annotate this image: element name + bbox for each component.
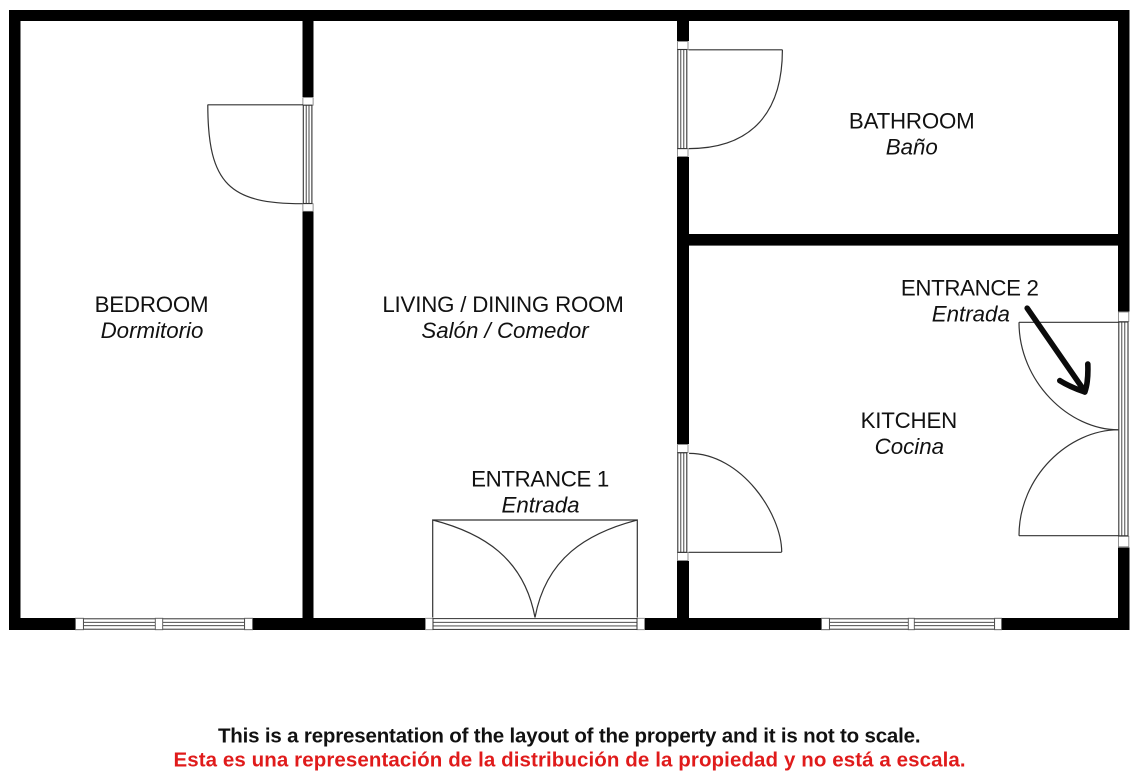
svg-text:BEDROOM: BEDROOM: [95, 292, 209, 317]
svg-text:Cocina: Cocina: [875, 434, 944, 459]
svg-text:Esta es una representación de: Esta es una representación de la distrib…: [173, 749, 965, 772]
svg-text:ENTRANCE 2: ENTRANCE 2: [901, 276, 1039, 301]
svg-text:Entrada: Entrada: [932, 302, 1010, 327]
svg-text:BATHROOM: BATHROOM: [849, 109, 975, 134]
svg-text:Entrada: Entrada: [501, 493, 579, 518]
svg-text:Dormitorio: Dormitorio: [101, 318, 204, 343]
svg-text:LIVING / DINING ROOM: LIVING / DINING ROOM: [382, 292, 623, 317]
svg-text:Salón / Comedor: Salón / Comedor: [421, 318, 590, 343]
svg-text:KITCHEN: KITCHEN: [861, 408, 957, 433]
svg-text:ENTRANCE 1: ENTRANCE 1: [471, 467, 609, 492]
svg-text:This is a representation of th: This is a representation of the layout o…: [218, 725, 920, 748]
svg-text:Baño: Baño: [886, 135, 938, 160]
